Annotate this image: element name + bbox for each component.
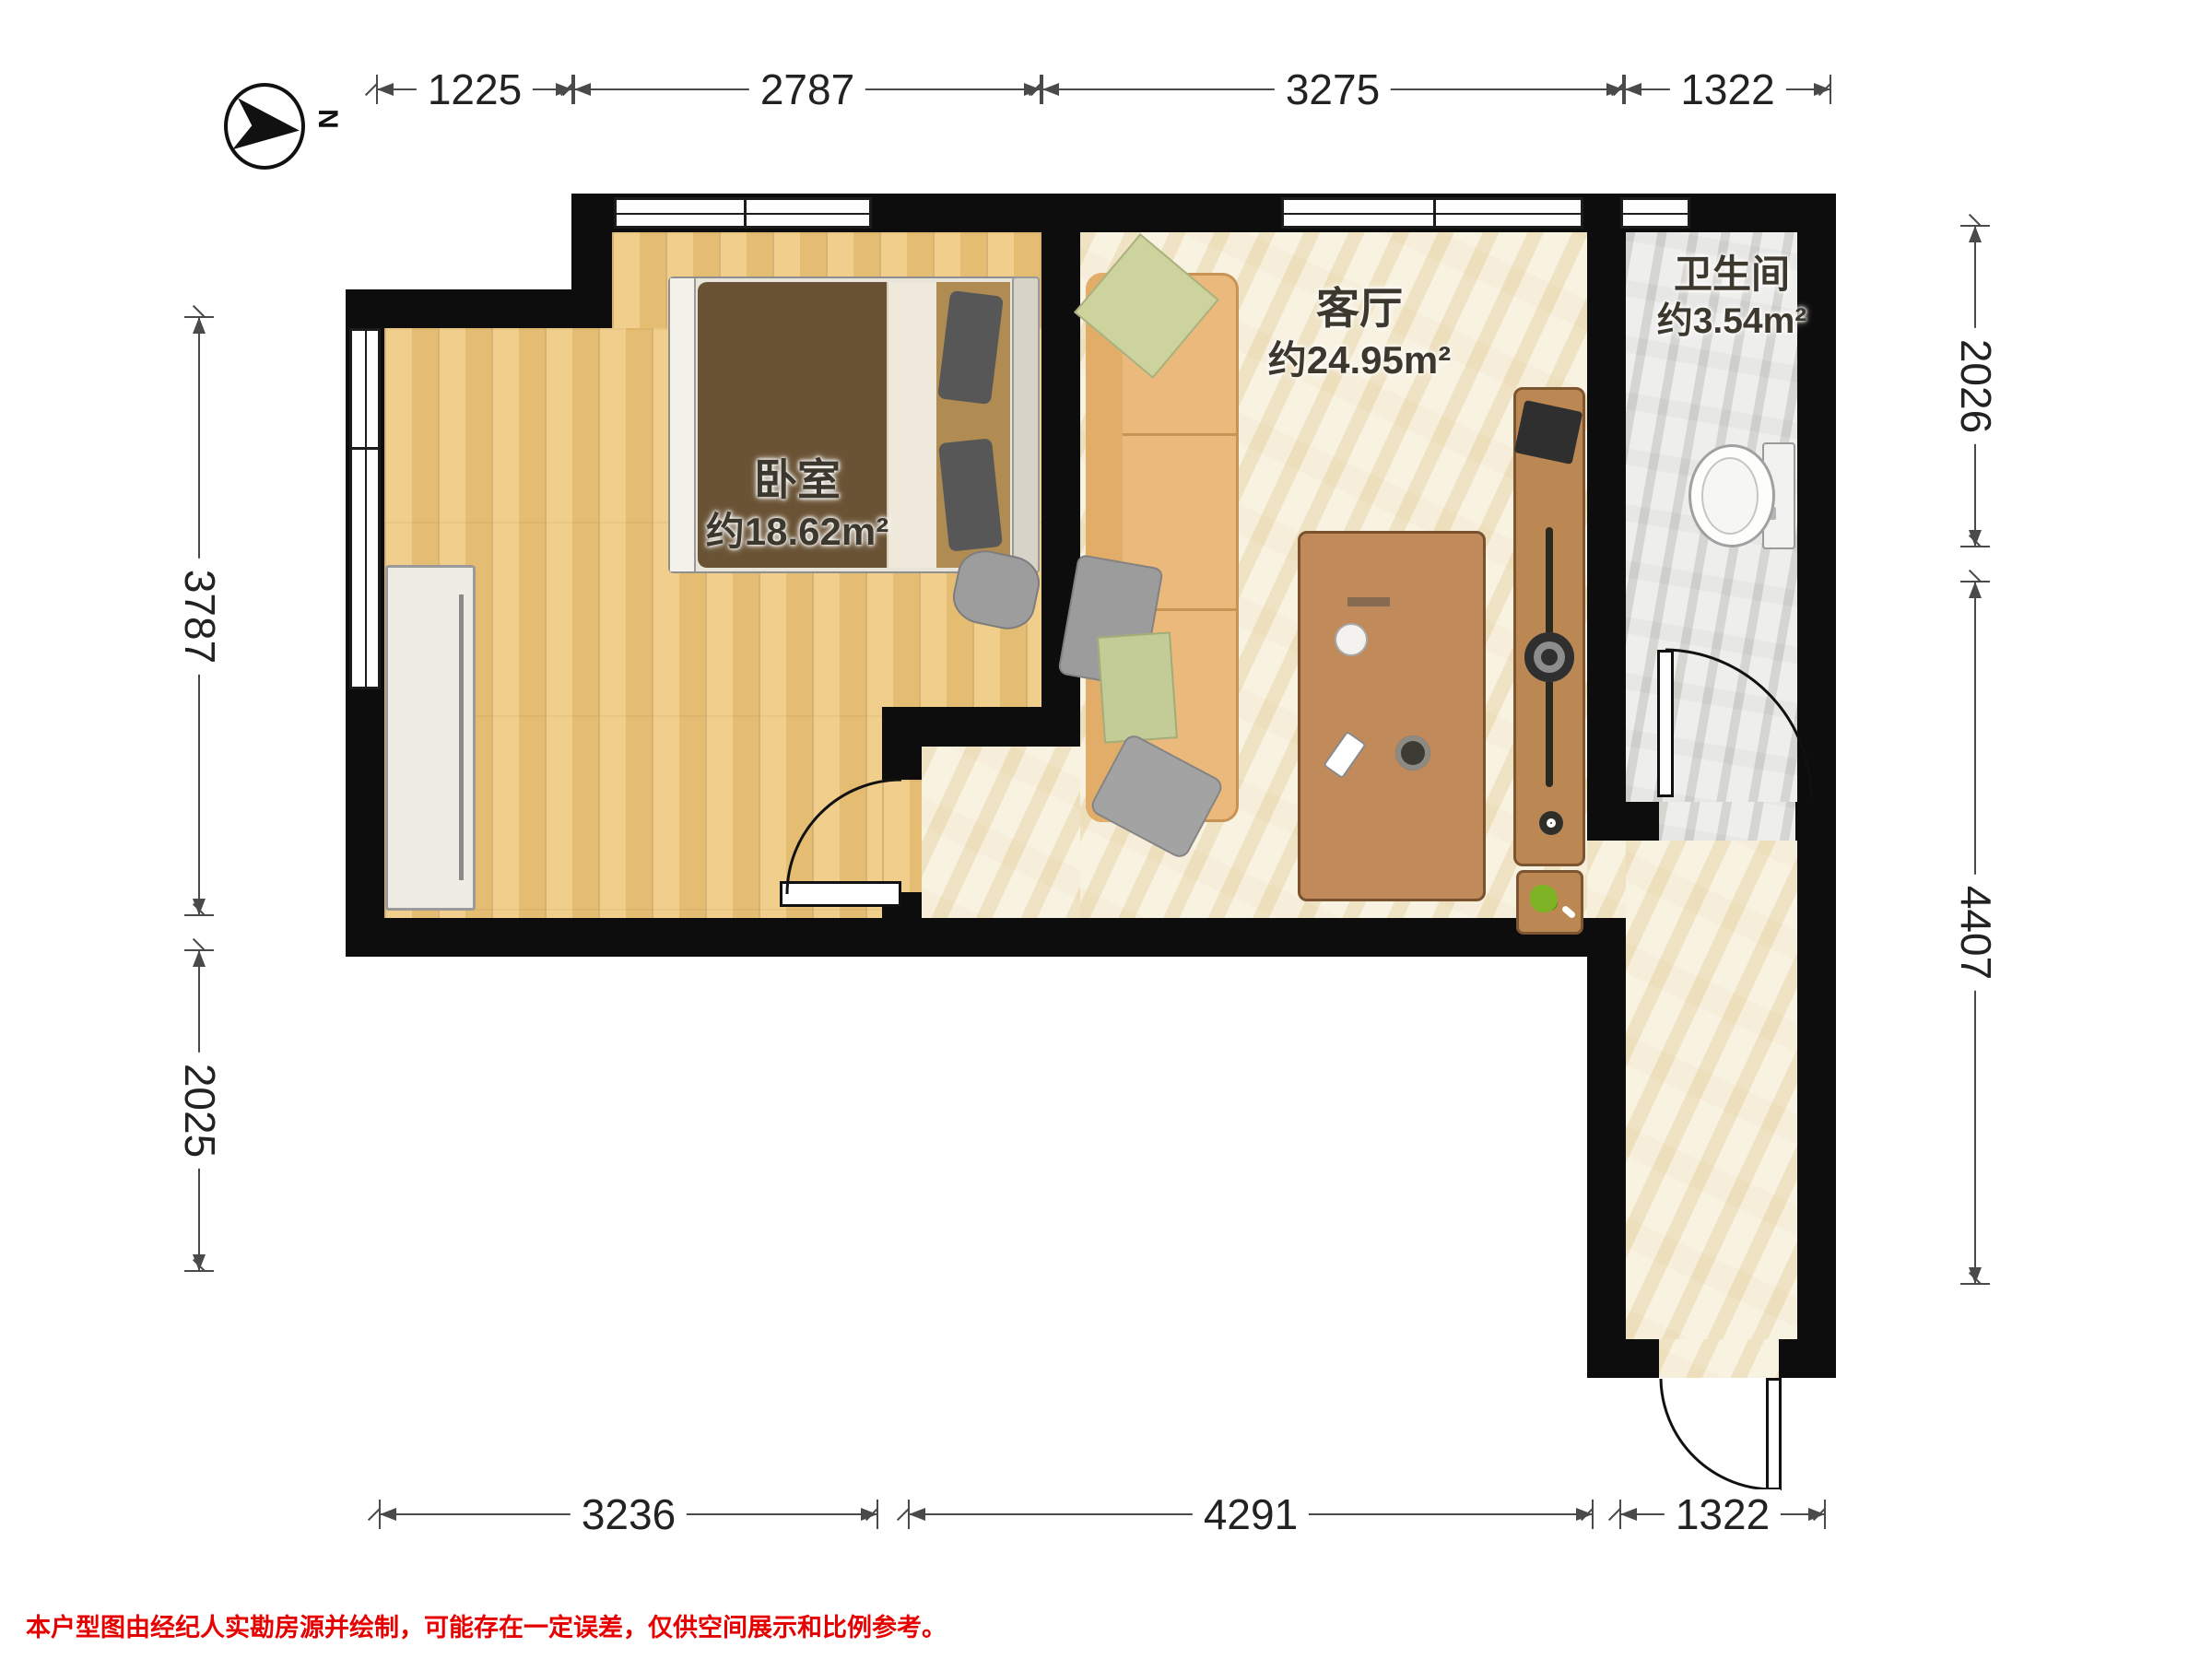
living-name: 客厅 [1207, 282, 1512, 336]
wall-bottom-right-stub [1779, 1339, 1836, 1378]
dim-top-3-value: 3275 [1275, 65, 1391, 114]
bathroom-name: 卫生间 [1589, 251, 1875, 300]
dim-right-1: 2026 [1974, 227, 1976, 546]
entry-door-arc [1661, 1379, 1773, 1489]
window-glass-line [617, 213, 869, 215]
living-area: 约24.95m² [1207, 336, 1512, 385]
dim-bottom-1: 3236 [381, 1513, 877, 1515]
wall-step-horizontal [346, 289, 612, 328]
sofa-seat-divider [1123, 433, 1239, 436]
bathroom-area: 约3.54m² [1589, 300, 1875, 345]
dim-bottom-1-value: 3236 [571, 1489, 687, 1539]
dim-bottom-2-value: 4291 [1193, 1489, 1309, 1539]
bed-headboard [1012, 276, 1040, 573]
dim-left-2: 2025 [198, 951, 200, 1270]
entry-door-leaf [1766, 1378, 1782, 1490]
bedroom-north-window [614, 197, 872, 229]
dim-top-1-value: 1225 [417, 65, 533, 114]
toilet-bowl-inner [1701, 457, 1759, 535]
dim-top-3: 3275 [1043, 88, 1622, 90]
bathroom-door-threshold [1659, 802, 1795, 841]
bedroom-door-leaf [780, 881, 901, 907]
coffee-table-ashtray [1395, 735, 1430, 771]
coffee-table-cup [1335, 623, 1368, 656]
dim-bottom-3-value: 1322 [1665, 1489, 1781, 1539]
window-glass-line [1284, 213, 1581, 215]
wardrobe-handle-groove [459, 594, 464, 880]
bedroom-west-window [349, 328, 381, 689]
living-hall-opening-floor [1587, 841, 1626, 918]
hallway-floor [1626, 841, 1797, 1339]
dim-top-2: 2787 [575, 88, 1040, 90]
window-glass-line [1623, 213, 1688, 215]
dim-bottom-3: 1322 [1621, 1513, 1824, 1515]
dim-right-2-value: 4407 [1951, 875, 2001, 991]
floor-plan-canvas: 卧室 约18.62m² 客厅 约24.95m² 卫生间 约3.54m² 1225… [0, 0, 2212, 1659]
window-divider [744, 200, 747, 226]
wall-hallway-west [1587, 918, 1626, 1378]
sofa-cushion-green-mid [1097, 631, 1178, 743]
side-cabinet-plant [1530, 885, 1558, 912]
coffee-table [1298, 531, 1486, 901]
dim-left-2-value: 2025 [175, 1053, 225, 1169]
bathroom-north-window [1620, 197, 1690, 229]
wall-bottom-left-stub [1587, 1339, 1659, 1378]
dim-left-1-value: 3787 [175, 558, 225, 674]
room-label-living: 客厅 约24.95m² [1207, 282, 1512, 384]
window-divider [352, 447, 378, 450]
tv-cabinet-knob [1539, 811, 1563, 835]
bedroom-door-threshold [882, 780, 922, 892]
window-divider [1433, 200, 1436, 226]
bathroom-door-leaf [1657, 650, 1674, 797]
disclaimer-text: 本户型图由经纪人实勘房源并绘制，可能存在一定误差，仅供空间展示和比例参考。 [26, 1607, 947, 1643]
dim-top-4: 1322 [1626, 88, 1830, 90]
dim-right-2: 4407 [1974, 582, 1976, 1283]
dim-top-1: 1225 [378, 88, 571, 90]
room-label-bathroom: 卫生间 约3.54m² [1589, 251, 1875, 344]
wall-bathroom-south-left [1587, 802, 1659, 841]
room-label-bedroom: 卧室 约18.62m² [645, 453, 949, 556]
coffee-table-logo [1347, 597, 1390, 606]
entry-threshold [1659, 1339, 1779, 1378]
window-glass-line [365, 331, 367, 687]
bedroom-area: 约18.62m² [645, 508, 949, 557]
tv-speaker [1524, 632, 1574, 682]
dim-top-2-value: 2787 [749, 65, 865, 114]
dim-left-1: 3787 [198, 318, 200, 914]
living-north-window [1281, 197, 1583, 229]
compass-north-label: N [312, 109, 343, 129]
dim-top-4-value: 1322 [1669, 65, 1785, 114]
dim-bottom-2: 4291 [910, 1513, 1592, 1515]
bedroom-name: 卧室 [645, 453, 949, 508]
wall-bedroom-door-jamb-upper [882, 707, 922, 780]
passage-floor [922, 747, 1080, 918]
wall-east [1797, 194, 1836, 1378]
dim-right-1-value: 2026 [1951, 328, 2001, 444]
wall-south [346, 918, 1626, 957]
